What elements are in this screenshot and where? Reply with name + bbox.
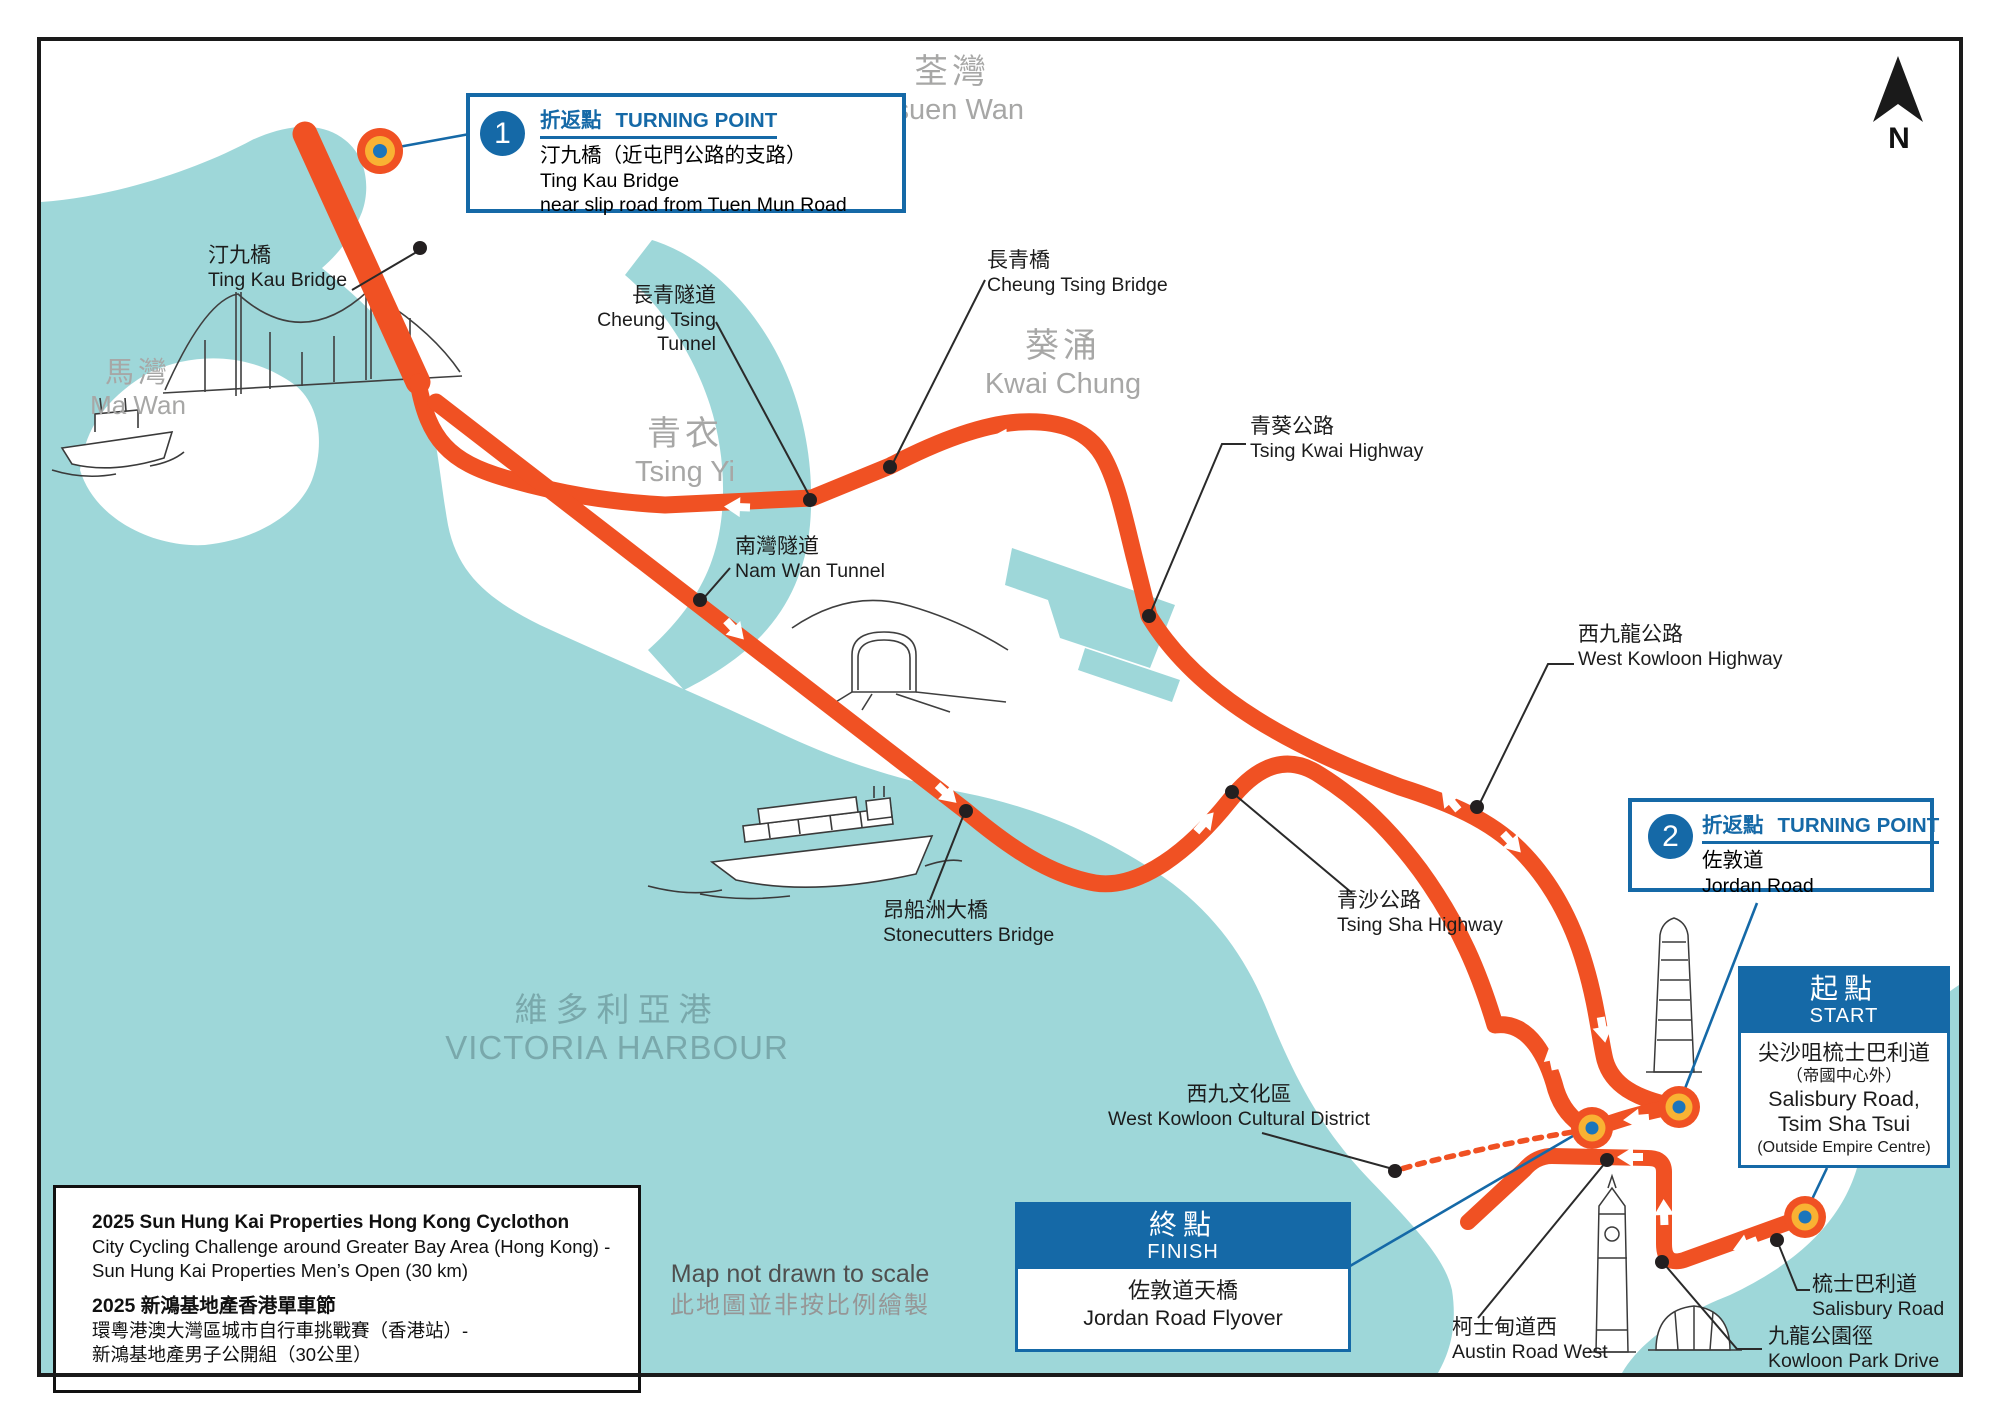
- map-border: [37, 37, 1963, 1377]
- cyclothon-route-map: N 荃灣 Tsuen Wan 葵涌 Kwai Chung 青衣 Tsing Yi…: [0, 0, 2000, 1414]
